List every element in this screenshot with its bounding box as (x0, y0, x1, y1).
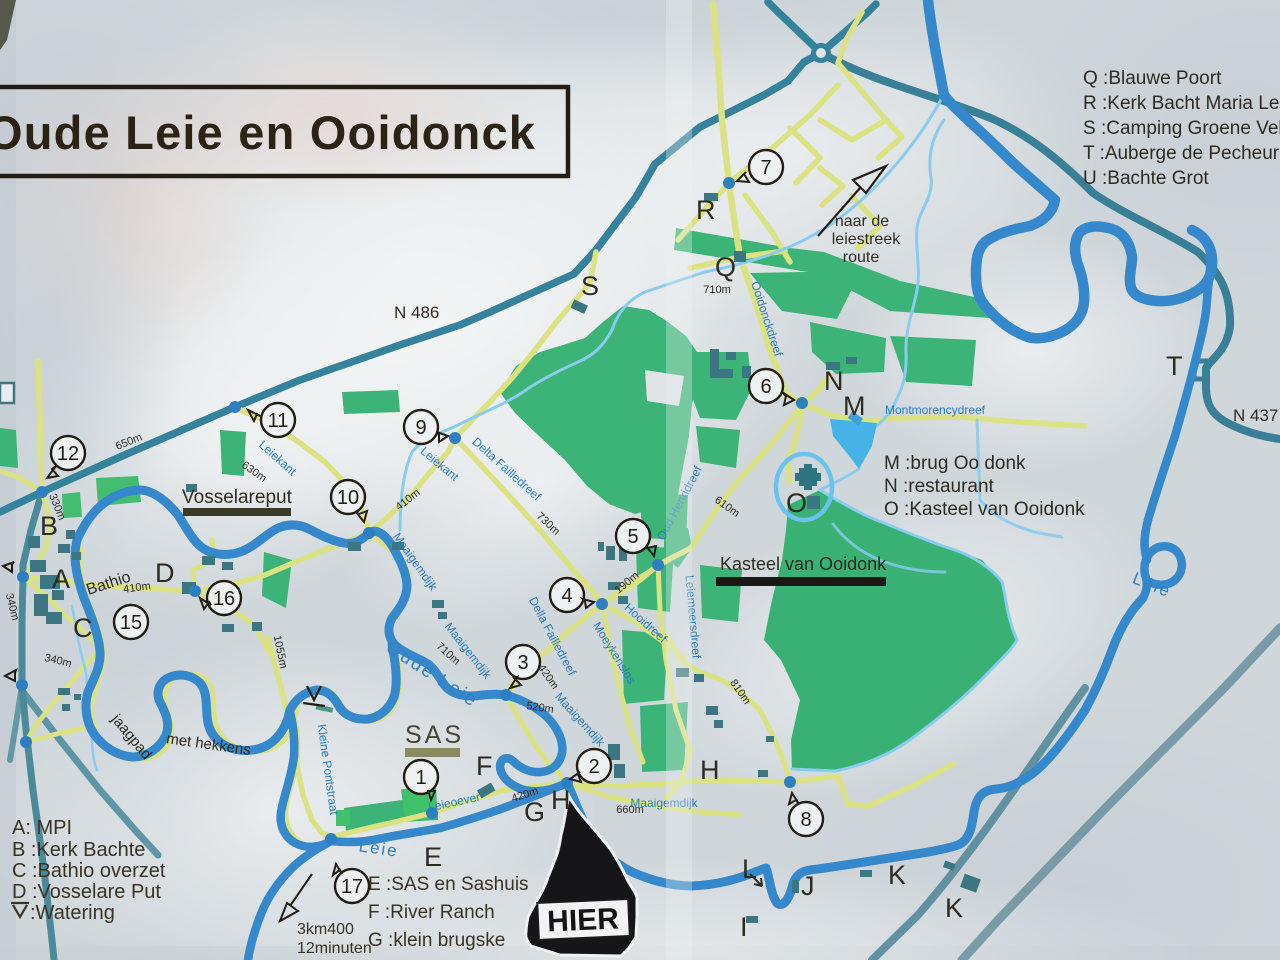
svg-text:K: K (945, 893, 963, 923)
svg-text:2: 2 (588, 756, 599, 778)
svg-text:B :Kerk Bachte: B :Kerk Bachte (12, 839, 145, 861)
svg-text:8: 8 (800, 809, 811, 831)
svg-text:C: C (73, 613, 93, 643)
svg-text:Q: Q (715, 252, 736, 282)
svg-text:O :Kasteel van Ooidonk: O :Kasteel van Ooidonk (884, 499, 1085, 520)
svg-text:SAS: SAS (405, 721, 464, 749)
svg-text:T: T (1166, 351, 1183, 381)
svg-text:10: 10 (337, 487, 359, 509)
svg-text:15: 15 (120, 612, 142, 634)
svg-text:S: S (581, 271, 599, 301)
svg-text:7: 7 (760, 157, 771, 179)
svg-text:M: M (843, 391, 866, 421)
svg-text:J: J (801, 871, 815, 901)
svg-text:S :Camping Groene Veld: S :Camping Groene Veld (1083, 118, 1280, 139)
svg-text:O: O (786, 488, 807, 518)
svg-text:710m: 710m (703, 284, 731, 296)
svg-text:N 486: N 486 (394, 303, 439, 322)
svg-text:route: route (843, 249, 880, 266)
svg-text:N 437: N 437 (1233, 406, 1278, 425)
svg-text:16: 16 (213, 588, 235, 610)
svg-text:G :klein brugske: G :klein brugske (368, 930, 505, 951)
svg-text:A: A (52, 564, 70, 594)
svg-text:N: N (824, 366, 844, 396)
svg-text:3km400: 3km400 (297, 921, 354, 938)
svg-text:E :SAS en Sashuis: E :SAS en Sashuis (368, 874, 529, 895)
svg-text:D: D (155, 558, 175, 588)
svg-text:17: 17 (341, 876, 363, 898)
svg-text:D :Vosselare Put: D :Vosselare Put (12, 881, 161, 903)
svg-text:5: 5 (627, 526, 638, 548)
svg-text:660m: 660m (616, 804, 644, 816)
svg-text:11: 11 (268, 410, 289, 432)
svg-text:E: E (424, 842, 442, 872)
svg-text:A: MPI: A: MPI (12, 817, 72, 839)
svg-text:leiestreek: leiestreek (832, 231, 901, 248)
svg-text:12minuten: 12minuten (297, 940, 372, 957)
svg-text:C :Bathio overzet: C :Bathio overzet (12, 860, 166, 882)
svg-text:Kasteel van Ooidonk: Kasteel van Ooidonk (720, 554, 887, 574)
svg-text:naar de: naar de (835, 213, 889, 230)
svg-text:F :River Ranch: F :River Ranch (368, 902, 495, 923)
svg-text:F: F (476, 751, 493, 781)
svg-text:H: H (700, 755, 720, 785)
svg-text:HIER: HIER (547, 902, 620, 938)
svg-text:N :restaurant: N :restaurant (884, 476, 995, 497)
svg-text:6: 6 (760, 376, 771, 398)
svg-text:1: 1 (415, 767, 426, 789)
svg-text:12: 12 (57, 443, 79, 465)
svg-text:R: R (696, 195, 716, 225)
svg-text:3: 3 (517, 652, 528, 674)
svg-text:U :Bachte Grot: U :Bachte Grot (1083, 168, 1209, 189)
svg-text:T :Auberge de Pecheur: T :Auberge de Pecheur (1083, 143, 1280, 164)
svg-text:Montmorencydreef: Montmorencydreef (885, 403, 986, 417)
svg-text:G: G (524, 797, 545, 827)
svg-text:R :Kerk Bacht Maria Leern: R :Kerk Bacht Maria Leern (1083, 93, 1280, 114)
svg-text:K: K (888, 860, 906, 890)
svg-text:4: 4 (561, 585, 572, 607)
svg-text:H: H (551, 785, 571, 815)
svg-text:I: I (740, 912, 748, 942)
svg-text:Oude Leie en Ooidonck: Oude Leie en Ooidonck (0, 106, 536, 159)
svg-text:M :brug Oo donk: M :brug Oo donk (884, 453, 1026, 474)
svg-text:Q :Blauwe Poort: Q :Blauwe Poort (1083, 68, 1222, 89)
svg-text:9: 9 (415, 417, 426, 439)
svg-text:Vosselareput: Vosselareput (182, 487, 293, 508)
svg-text::Watering: :Watering (30, 902, 115, 924)
